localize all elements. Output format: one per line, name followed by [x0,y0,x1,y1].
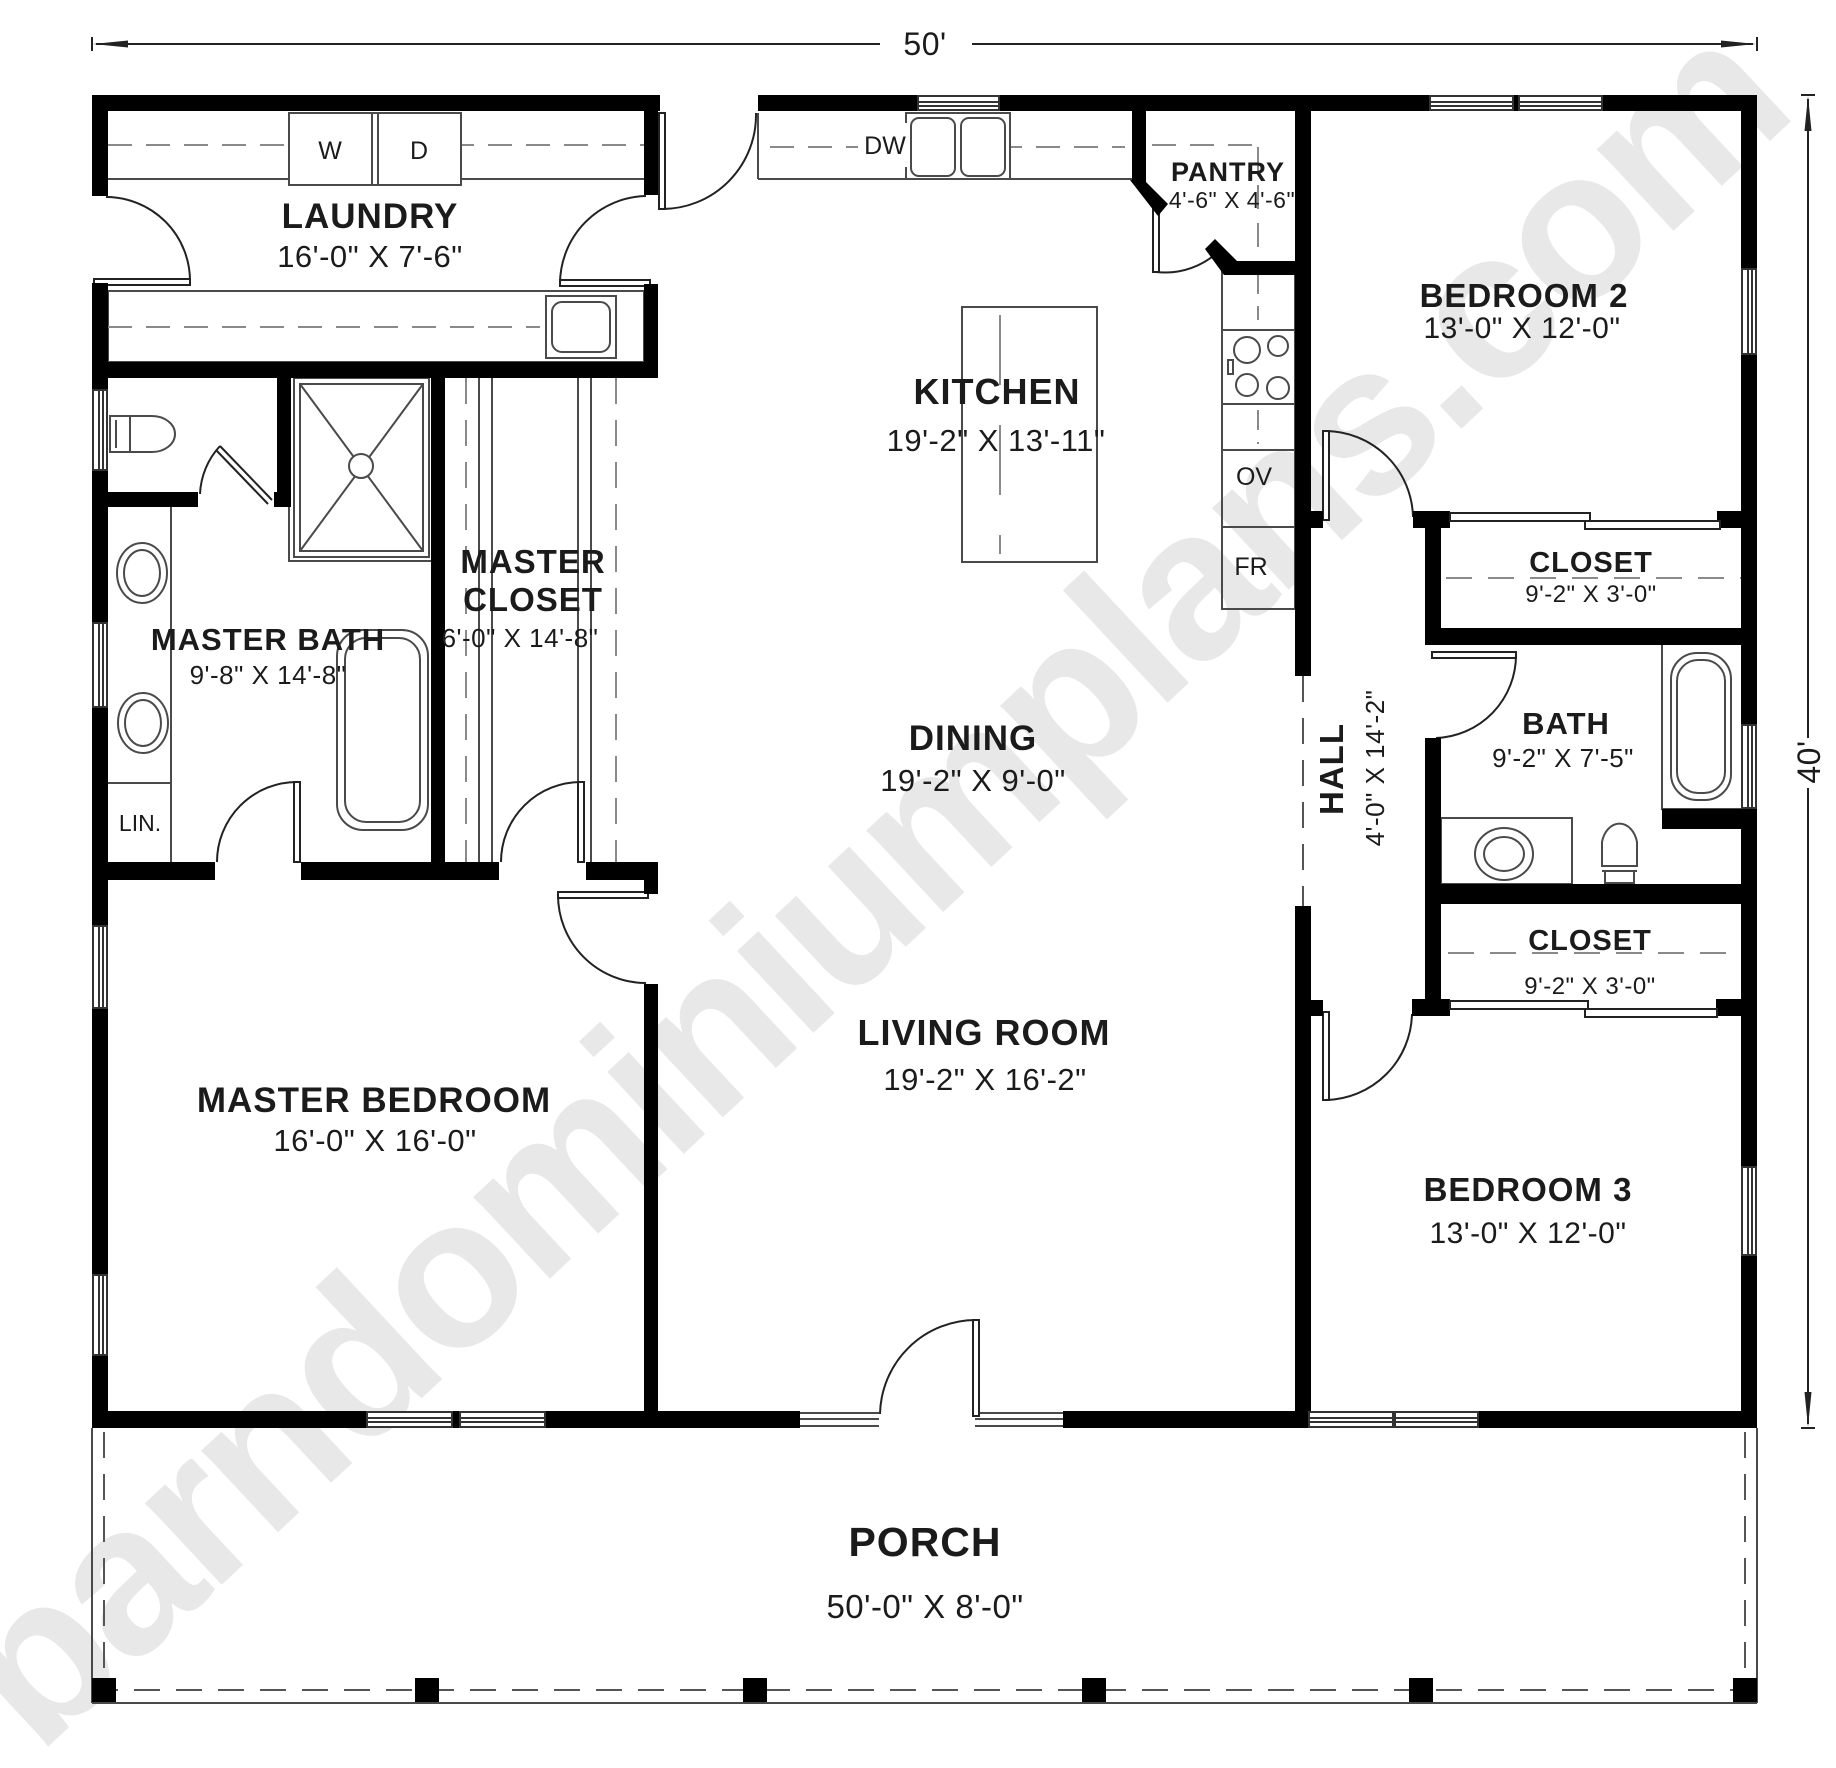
svg-text:PANTRY: PANTRY [1171,157,1285,187]
svg-text:PORCH: PORCH [848,1519,1001,1565]
svg-text:HALL: HALL [1313,723,1350,815]
svg-text:50': 50' [903,26,946,62]
svg-text:4'-6" X 4'-6": 4'-6" X 4'-6" [1169,187,1295,213]
svg-text:CLOSET: CLOSET [463,581,603,618]
svg-text:OV: OV [1236,463,1272,491]
svg-text:MASTER BATH: MASTER BATH [151,622,385,657]
svg-text:9'-2" X 3'-0": 9'-2" X 3'-0" [1525,581,1656,608]
svg-text:BEDROOM 2: BEDROOM 2 [1420,277,1629,314]
svg-text:4'-0" X 14'-2": 4'-0" X 14'-2" [1360,690,1390,847]
svg-text:BEDROOM 3: BEDROOM 3 [1424,1171,1633,1208]
svg-text:LAUNDRY: LAUNDRY [282,197,459,236]
svg-text:W: W [318,137,342,165]
svg-text:6'-0" X 14'-8": 6'-0" X 14'-8" [442,623,599,653]
svg-text:9'-2" X 7'-5": 9'-2" X 7'-5" [1492,743,1634,773]
svg-text:13'-0" X 12'-0": 13'-0" X 12'-0" [1429,1217,1626,1250]
svg-text:40': 40' [1791,740,1827,783]
svg-text:KITCHEN: KITCHEN [914,371,1081,412]
svg-text:D: D [410,137,428,165]
svg-text:MASTER BEDROOM: MASTER BEDROOM [197,1081,551,1120]
svg-text:16'-0" X 16'-0": 16'-0" X 16'-0" [273,1123,476,1158]
svg-text:50'-0" X 8'-0": 50'-0" X 8'-0" [826,1588,1023,1625]
svg-text:19'-2" X 9'-0": 19'-2" X 9'-0" [880,763,1066,798]
svg-text:CLOSET: CLOSET [1529,547,1653,579]
svg-text:BATH: BATH [1522,706,1610,741]
svg-text:9'-8" X 14'-8": 9'-8" X 14'-8" [190,660,347,690]
svg-text:FR: FR [1234,553,1267,581]
svg-text:DW: DW [864,132,906,160]
svg-text:19'-2" X 13'-11": 19'-2" X 13'-11" [887,423,1106,458]
svg-text:13'-0" X 12'-0": 13'-0" X 12'-0" [1423,312,1620,345]
svg-text:19'-2" X 16'-2": 19'-2" X 16'-2" [883,1062,1086,1097]
svg-text:MASTER: MASTER [460,543,605,580]
svg-text:LIVING ROOM: LIVING ROOM [858,1012,1111,1053]
svg-text:CLOSET: CLOSET [1528,925,1652,957]
svg-text:LIN.: LIN. [119,810,161,836]
svg-text:16'-0" X 7'-6": 16'-0" X 7'-6" [277,239,463,274]
svg-text:9'-2" X 3'-0": 9'-2" X 3'-0" [1524,973,1655,1000]
svg-text:DINING: DINING [909,719,1038,758]
